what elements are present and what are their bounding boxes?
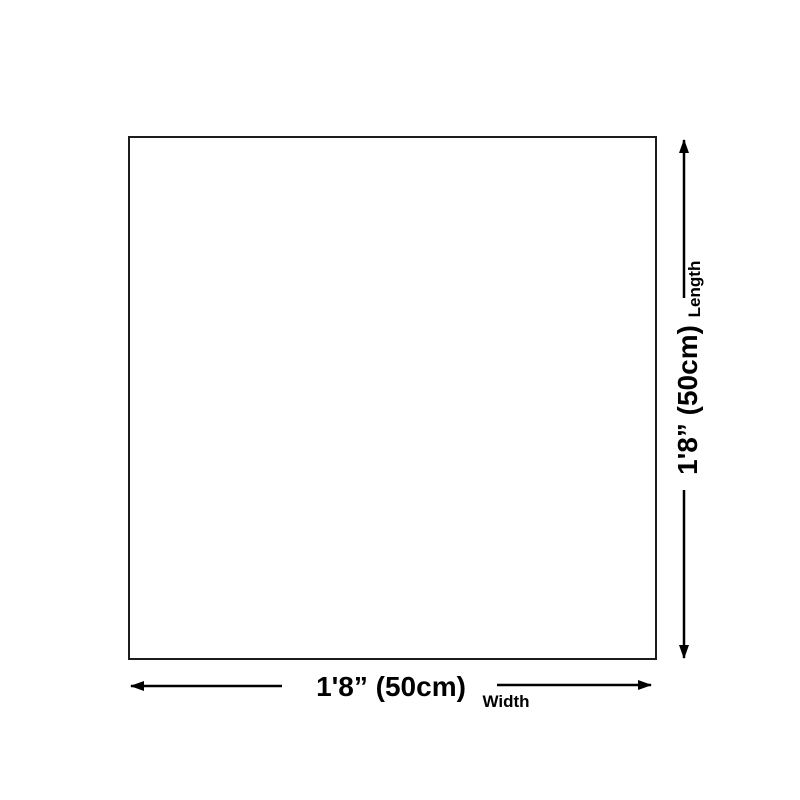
length-dimension-label: Length — [686, 249, 704, 329]
width-dimension-value: 1'8” (50cm) — [271, 672, 511, 701]
product-dimension-diagram: 1'8” (50cm) Length 1'8” (50cm) Width — [0, 0, 800, 800]
product-outline — [128, 136, 657, 660]
width-dimension-label: Width — [476, 693, 536, 710]
